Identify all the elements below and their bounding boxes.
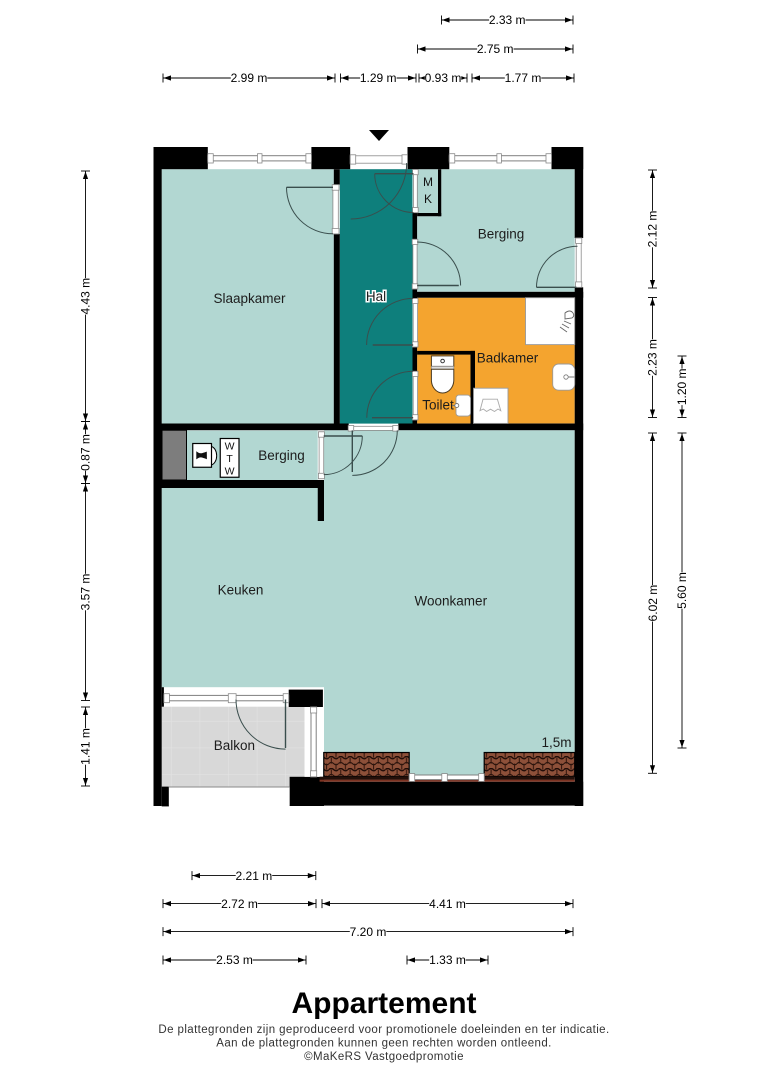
svg-text:2.72 m: 2.72 m — [221, 897, 258, 911]
svg-text:W: W — [225, 466, 235, 478]
svg-text:2.21 m: 2.21 m — [236, 869, 273, 883]
svg-text:1.20 m: 1.20 m — [675, 368, 689, 405]
svg-text:Berging: Berging — [258, 448, 305, 463]
svg-text:1.33 m: 1.33 m — [429, 953, 466, 967]
svg-text:0.87 m: 0.87 m — [79, 434, 93, 471]
svg-text:Appartement: Appartement — [291, 987, 476, 1020]
svg-text:2.12 m: 2.12 m — [646, 211, 660, 248]
svg-text:7.20 m: 7.20 m — [350, 925, 387, 939]
svg-text:Woonkamer: Woonkamer — [415, 593, 488, 608]
svg-text:1.29 m: 1.29 m — [360, 71, 397, 85]
svg-text:Aan de plattegronden kunnen ge: Aan de plattegronden kunnen geen rechten… — [216, 1038, 551, 1050]
svg-text:2.23 m: 2.23 m — [646, 339, 660, 376]
svg-text:©MaKeRS Vastgoedpromotie: ©MaKeRS Vastgoedpromotie — [304, 1051, 464, 1063]
svg-text:Badkamer: Badkamer — [477, 351, 539, 366]
svg-text:1.77 m: 1.77 m — [505, 71, 542, 85]
svg-text:0.93 m: 0.93 m — [425, 71, 462, 85]
svg-text:Keuken: Keuken — [218, 582, 264, 597]
svg-text:K: K — [424, 192, 432, 206]
svg-text:Slaapkamer: Slaapkamer — [213, 291, 286, 306]
svg-text:De plattegronden zijn geproduc: De plattegronden zijn geproduceerd voor … — [158, 1024, 609, 1036]
svg-text:Balkon: Balkon — [214, 738, 255, 753]
svg-text:3.57 m: 3.57 m — [79, 574, 93, 611]
svg-text:M: M — [423, 175, 433, 189]
svg-text:4.43 m: 4.43 m — [79, 278, 93, 315]
svg-text:2.33 m: 2.33 m — [489, 13, 526, 27]
svg-text:6.02 m: 6.02 m — [646, 585, 660, 622]
svg-text:2.53 m: 2.53 m — [216, 953, 253, 967]
svg-text:Hal: Hal — [366, 289, 386, 304]
svg-text:W: W — [225, 441, 235, 453]
svg-text:4.41 m: 4.41 m — [429, 897, 466, 911]
svg-text:Toilet: Toilet — [422, 398, 454, 413]
svg-text:2.99 m: 2.99 m — [231, 71, 268, 85]
svg-text:1,5m: 1,5m — [541, 735, 571, 750]
svg-text:2.75 m: 2.75 m — [477, 42, 514, 56]
svg-text:Berging: Berging — [478, 227, 525, 242]
svg-text:5.60 m: 5.60 m — [675, 572, 689, 609]
svg-text:1.41 m: 1.41 m — [79, 728, 93, 765]
svg-text:T: T — [226, 453, 233, 465]
